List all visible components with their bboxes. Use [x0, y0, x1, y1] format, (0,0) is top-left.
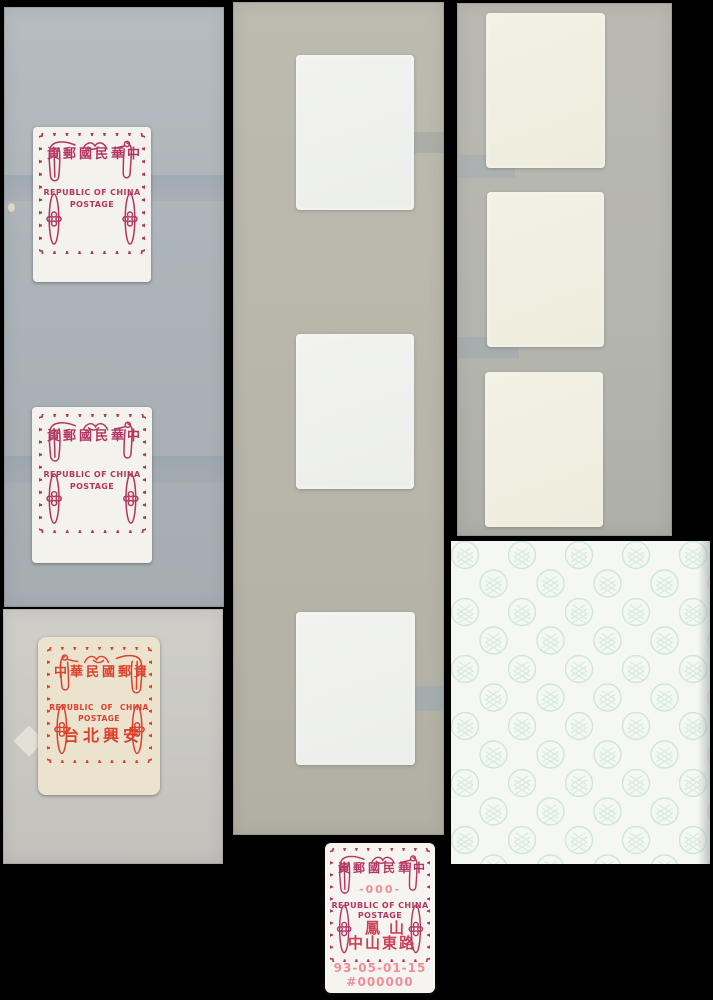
teal-circle-pattern: [451, 541, 710, 864]
stamp-office-name: 台北興安: [38, 728, 164, 744]
blank-label: [487, 192, 604, 347]
orange-atm-stamp: 中華民國郵資 REPUBLIC OF CHINA POSTAGE 台北興安: [38, 637, 160, 795]
stamp-english-line1: REPUBLIC OF CHINA: [38, 704, 160, 712]
paper-fleck: [8, 203, 15, 212]
sheet-curled-edge: [698, 541, 710, 864]
machine-serial-imprint: #000000: [325, 976, 435, 988]
blank-label: [485, 372, 603, 527]
stamp-english-line2: POSTAGE: [33, 201, 151, 209]
stamp-chinese-inscription: 資郵國民華中: [33, 148, 154, 161]
stamp-english-line1: REPUBLIC OF CHINA: [325, 902, 435, 910]
blank-label: [486, 13, 605, 168]
blank-label: [296, 612, 415, 765]
atm-stamp-2: 資郵國民華中 REPUBLIC OF CHINA POSTAGE: [32, 407, 152, 563]
security-backing-paper: [451, 541, 710, 864]
tape-mark: [410, 686, 444, 711]
atm-stamp-1: 資郵國民華中 REPUBLIC OF CHINA POSTAGE: [33, 127, 151, 282]
mount-card-top-left: 資郵國民華中 REPUBLIC OF CHINA POSTAGE 資郵國民華中 …: [4, 7, 224, 607]
stamp-english-line1: REPUBLIC OF CHINA: [33, 189, 151, 197]
blank-label: [296, 55, 414, 210]
stamp-chinese-inscription: 資郵國民華中: [32, 430, 155, 443]
mount-card-bottom-left: 中華民國郵資 REPUBLIC OF CHINA POSTAGE 台北興安: [3, 609, 223, 864]
stamp-chinese-inscription: 資郵國民華中: [325, 862, 438, 874]
machine-printed-atm-stamp: 資郵國民華中 -000- REPUBLIC OF CHINA POSTAGE 鳳…: [325, 843, 435, 993]
mount-card-right: [457, 3, 672, 536]
machine-date-imprint: 93-05-01-15: [325, 962, 435, 974]
stamp-english-line2: POSTAGE: [38, 715, 160, 723]
stamp-chinese-inscription: 中華民國郵資: [38, 666, 163, 679]
mount-card-middle: [233, 2, 444, 835]
blank-label: [296, 334, 414, 489]
stamp-lot-photo: 資郵國民華中 REPUBLIC OF CHINA POSTAGE 資郵國民華中 …: [0, 0, 713, 1000]
machine-value-imprint: -000-: [325, 884, 435, 895]
stamp-english-line2: POSTAGE: [32, 483, 152, 491]
machine-office-imprint-line2: 中山東路: [325, 936, 437, 951]
stamp-english-line1: REPUBLIC OF CHINA: [32, 471, 152, 479]
